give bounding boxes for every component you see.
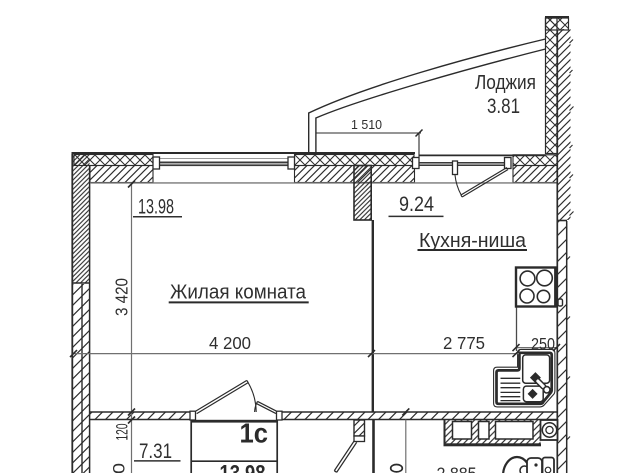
svg-text:Лоджия: Лоджия <box>475 72 536 94</box>
svg-text:13.98: 13.98 <box>138 196 174 219</box>
svg-text:13.98: 13.98 <box>220 460 266 473</box>
svg-text:120: 120 <box>114 424 132 441</box>
svg-text:4 200: 4 200 <box>209 333 251 353</box>
svg-text:9.24: 9.24 <box>399 193 434 216</box>
svg-text:3 420: 3 420 <box>112 278 132 316</box>
svg-text:Кухня-ниша: Кухня-ниша <box>419 230 527 252</box>
svg-text:0: 0 <box>111 463 129 473</box>
svg-text:250: 250 <box>531 336 555 354</box>
svg-text:Жилая комната: Жилая комната <box>170 282 307 304</box>
svg-text:1с: 1с <box>240 418 269 449</box>
svg-text:2 885: 2 885 <box>437 464 477 473</box>
svg-text:2 775: 2 775 <box>443 333 485 353</box>
svg-text:3.81: 3.81 <box>487 95 520 118</box>
svg-text:7.31: 7.31 <box>139 440 172 463</box>
svg-text:1 510: 1 510 <box>351 117 382 132</box>
